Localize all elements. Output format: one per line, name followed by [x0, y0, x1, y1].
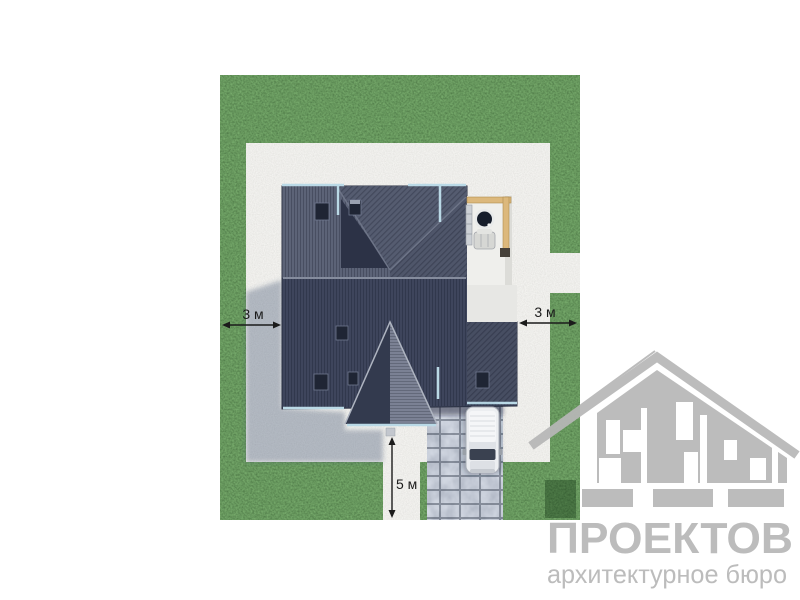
porch-step: [386, 428, 395, 436]
chimney-cap: [350, 200, 360, 204]
roof-chimney: [476, 372, 489, 388]
patio-table-highlight: [487, 223, 490, 226]
pergola-beam-side: [503, 197, 509, 253]
car-cowl: [469, 442, 496, 449]
car-mirror-left: [463, 449, 467, 455]
dimension-label: 5 м: [396, 476, 417, 492]
patio-chair: [474, 232, 495, 249]
car-windshield: [470, 449, 496, 460]
watermark-title: ПРОЕКТОВ: [547, 514, 793, 563]
dimension-label: 3 м: [534, 304, 555, 320]
roof-skylight: [314, 374, 328, 390]
dimension-label: 3 м: [242, 306, 263, 322]
roof-chimney: [336, 326, 348, 340]
lawn-shadow-patch: [545, 480, 576, 518]
car: [463, 405, 503, 475]
site-plan-canvas: 3 м 3 м 5 м: [0, 0, 800, 600]
patio-ladder: [466, 205, 472, 245]
watermark-subtitle: архитектурное бюро: [547, 559, 787, 589]
car-mirror-right: [499, 449, 503, 455]
chair-cushion: [477, 229, 492, 234]
patio: [466, 196, 517, 322]
car-hood: [470, 461, 495, 470]
roof-tile-texture: [467, 322, 517, 403]
roof-skylight: [315, 203, 329, 220]
site-plan-render: 3 м 3 м 5 м: [0, 0, 800, 600]
logo-base-blocks: [582, 489, 784, 507]
car-bumper: [470, 469, 495, 473]
roof-chimney: [348, 372, 358, 385]
terrace-floor: [467, 285, 517, 322]
pergola-post: [500, 248, 510, 257]
